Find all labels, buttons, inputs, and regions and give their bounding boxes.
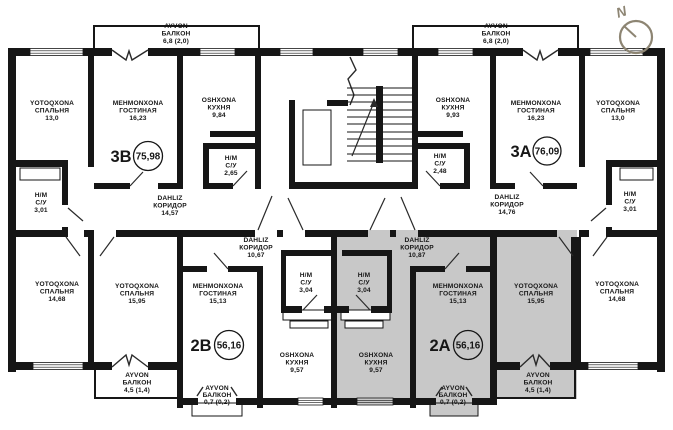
svg-text:H/M: H/M (225, 155, 238, 162)
room-label-2a-small-balcony: AYVONБАЛКОН0,7 (0,2) (439, 385, 468, 406)
svg-text:9,57: 9,57 (369, 367, 383, 374)
floor-plan-canvas: YOTOQXONAСПАЛЬНЯ13,0 MEHMONXONAГОСТИНАЯ1… (0, 0, 673, 430)
svg-text:КУХНЯ: КУХНЯ (286, 360, 309, 367)
svg-text:КОРИДОР: КОРИДОР (153, 203, 187, 210)
svg-text:СПАЛЬНЯ: СПАЛЬНЯ (600, 289, 634, 296)
floor-plan-page: YOTOQXONAСПАЛЬНЯ13,0 MEHMONXONAГОСТИНАЯ1… (0, 0, 673, 430)
svg-text:С/У: С/У (624, 199, 636, 206)
window (33, 363, 83, 370)
apartment-badge-2b[interactable]: 2B 56,16 (190, 331, 243, 360)
svg-text:9,84: 9,84 (212, 112, 226, 119)
svg-text:4,5 (1,4): 4,5 (1,4) (124, 387, 150, 394)
svg-text:DAHLIZ: DAHLIZ (243, 237, 268, 244)
room-label-bottom-right-bedroom: YOTOQXONAСПАЛЬНЯ14,68 (595, 281, 639, 303)
compass-north-label: N (614, 2, 629, 21)
svg-text:DAHLIZ: DAHLIZ (494, 194, 519, 201)
room-label-3b-living: MEHMONXONAГОСТИНАЯ16,23 (113, 100, 164, 122)
svg-text:СПАЛЬНЯ: СПАЛЬНЯ (120, 291, 154, 298)
svg-text:YOTOQXONA: YOTOQXONA (35, 281, 79, 288)
window (200, 49, 235, 56)
svg-text:14,57: 14,57 (161, 210, 178, 217)
svg-text:ГОСТИНАЯ: ГОСТИНАЯ (119, 108, 157, 115)
window (357, 398, 393, 405)
compass-needle (624, 26, 636, 37)
svg-text:OSHXONA: OSHXONA (202, 97, 236, 104)
svg-text:AYVON: AYVON (526, 372, 550, 379)
svg-text:AYVON: AYVON (484, 23, 508, 30)
window (30, 49, 83, 56)
shaft-2a-inner (345, 321, 383, 328)
room-label-2b-hall: DAHLIZКОРИДОР10,67 (239, 237, 273, 259)
svg-text:OSHXONA: OSHXONA (436, 97, 470, 104)
svg-text:15,95: 15,95 (128, 298, 145, 305)
svg-text:КОРИДОР: КОРИДОР (400, 245, 434, 252)
room-label-2a-balcony: AYVONБАЛКОН4,5 (1,4) (524, 372, 553, 394)
svg-text:YOTOQXONA: YOTOQXONA (595, 281, 639, 288)
svg-text:9,57: 9,57 (290, 367, 304, 374)
svg-text:10,67: 10,67 (247, 252, 264, 259)
svg-text:КУХНЯ: КУХНЯ (442, 105, 465, 112)
svg-text:СПАЛЬНЯ: СПАЛЬНЯ (519, 291, 553, 298)
staircase (347, 86, 412, 163)
balcony-door-2b (112, 355, 148, 367)
svg-text:DAHLIZ: DAHLIZ (157, 195, 182, 202)
svg-text:H/M: H/M (35, 192, 48, 199)
svg-text:2,65: 2,65 (224, 170, 238, 177)
svg-text:ГОСТИНАЯ: ГОСТИНАЯ (439, 291, 477, 298)
window (298, 398, 323, 405)
svg-text:15,13: 15,13 (449, 298, 466, 305)
small-balcony-door-2b (231, 387, 237, 396)
svg-text:КОРИДОР: КОРИДОР (239, 245, 273, 252)
apartment-area: 56,16 (456, 341, 481, 352)
svg-text:0,7 (0,2): 0,7 (0,2) (440, 399, 466, 406)
room-label-2b-wc: H/MС/У3,04 (299, 272, 313, 294)
svg-text:DAHLIZ: DAHLIZ (404, 237, 429, 244)
svg-text:AYVON: AYVON (205, 385, 229, 392)
room-label-3a-hall: DAHLIZКОРИДОР14,76 (490, 194, 524, 216)
room-label-2b-kitchen: OSHXONAКУХНЯ9,57 (280, 352, 314, 374)
entrance-door (348, 57, 356, 105)
svg-text:3,01: 3,01 (623, 206, 637, 213)
room-label-3b-bedroom: YOTOQXONAСПАЛЬНЯ13,0 (30, 100, 74, 122)
shaft-right-wc (620, 168, 653, 180)
svg-text:H/M: H/M (624, 191, 637, 198)
apartment-code: 3B (110, 148, 131, 166)
svg-text:БАЛКОН: БАЛКОН (162, 31, 191, 38)
svg-text:14,76: 14,76 (498, 209, 515, 216)
svg-text:MEHMONXONA: MEHMONXONA (193, 283, 244, 290)
svg-text:15,95: 15,95 (527, 298, 544, 305)
svg-text:БАЛКОН: БАЛКОН (439, 392, 468, 399)
svg-text:С/У: С/У (358, 280, 370, 287)
svg-text:6,8 (2,0): 6,8 (2,0) (483, 38, 509, 45)
svg-text:OSHXONA: OSHXONA (280, 352, 314, 359)
svg-text:3,04: 3,04 (299, 287, 313, 294)
room-label-2b-small-balcony: AYVONБАЛКОН0,7 (0,2) (203, 385, 232, 406)
svg-text:9,93: 9,93 (446, 112, 460, 119)
room-label-3b-wc: H/MС/У2,65 (224, 155, 238, 177)
svg-text:OSHXONA: OSHXONA (359, 352, 393, 359)
svg-text:БАЛКОН: БАЛКОН (482, 31, 511, 38)
window (438, 49, 473, 56)
room-label-3a-kitchen: OSHXONAКУХНЯ9,93 (436, 97, 470, 119)
svg-text:16,23: 16,23 (129, 115, 146, 122)
svg-text:13,0: 13,0 (45, 115, 59, 122)
svg-text:3,04: 3,04 (357, 287, 371, 294)
svg-text:С/У: С/У (225, 163, 237, 170)
svg-text:ГОСТИНАЯ: ГОСТИНАЯ (199, 291, 237, 298)
svg-text:СПАЛЬНЯ: СПАЛЬНЯ (601, 108, 635, 115)
svg-text:СПАЛЬНЯ: СПАЛЬНЯ (40, 289, 74, 296)
room-label-right-wc: H/MС/У3,01 (623, 191, 637, 213)
svg-text:2,48: 2,48 (433, 168, 447, 175)
svg-text:H/M: H/M (300, 272, 313, 279)
svg-text:0,7 (0,2): 0,7 (0,2) (204, 399, 230, 406)
room-label-2b-balcony: AYVONБАЛКОН4,5 (1,4) (123, 372, 152, 394)
stair-stringer (376, 86, 383, 163)
svg-text:БАЛКОН: БАЛКОН (123, 380, 152, 387)
room-label-3a-wc: H/MС/У2,48 (433, 153, 447, 175)
room-label-2b-living: MEHMONXONAГОСТИНАЯ15,13 (193, 283, 244, 305)
room-label-3a-bedroom: YOTOQXONAСПАЛЬНЯ13,0 (596, 100, 640, 122)
room-label-bottom-left-bedroom: YOTOQXONAСПАЛЬНЯ14,68 (35, 281, 79, 303)
apartment-area: 76,09 (535, 147, 560, 158)
shaft-left-wc (20, 168, 60, 180)
room-label-2b-bedroom: YOTOQXONAСПАЛЬНЯ15,95 (115, 283, 159, 305)
svg-text:КУХНЯ: КУХНЯ (208, 105, 231, 112)
balcony-door-3a (523, 50, 558, 60)
svg-text:MEHMONXONA: MEHMONXONA (113, 100, 164, 107)
window (588, 363, 638, 370)
svg-text:AYVON: AYVON (441, 385, 465, 392)
elevator-shaft (303, 110, 331, 165)
svg-text:AYVON: AYVON (125, 372, 149, 379)
svg-text:MEHMONXONA: MEHMONXONA (433, 283, 484, 290)
room-label-3b-kitchen: OSHXONAКУХНЯ9,84 (202, 97, 236, 119)
room-label-3a-living: MEHMONXONAГОСТИНАЯ16,23 (511, 100, 562, 122)
room-label-3b-balcony: AYVONБАЛКОН6,8 (2,0) (162, 23, 191, 45)
svg-text:14,68: 14,68 (608, 296, 625, 303)
apartment-code: 2A (429, 337, 450, 355)
room-label-left-wc: H/MС/У3,01 (34, 192, 48, 214)
svg-text:КУХНЯ: КУХНЯ (365, 360, 388, 367)
svg-text:4,5 (1,4): 4,5 (1,4) (525, 387, 551, 394)
apartment-area: 56,16 (217, 341, 242, 352)
svg-text:БАЛКОН: БАЛКОН (524, 380, 553, 387)
room-label-3a-balcony: AYVONБАЛКОН6,8 (2,0) (482, 23, 511, 45)
apartment-badge-3b[interactable]: 3B 75,98 (110, 142, 162, 171)
svg-text:С/У: С/У (35, 200, 47, 207)
window (363, 49, 398, 56)
svg-text:С/У: С/У (434, 161, 446, 168)
svg-text:YOTOQXONA: YOTOQXONA (514, 283, 558, 290)
svg-text:3,01: 3,01 (34, 207, 48, 214)
apartment-code: 3A (510, 143, 531, 161)
svg-text:YOTOQXONA: YOTOQXONA (30, 100, 74, 107)
compass: N (614, 2, 652, 53)
room-label-2a-wc: H/MС/У3,04 (357, 272, 371, 294)
svg-text:КОРИДОР: КОРИДОР (490, 202, 524, 209)
svg-text:YOTOQXONA: YOTOQXONA (115, 283, 159, 290)
room-label-3b-hall: DAHLIZКОРИДОР14,57 (153, 195, 187, 217)
svg-text:С/У: С/У (300, 280, 312, 287)
svg-text:AYVON: AYVON (164, 23, 188, 30)
svg-text:БАЛКОН: БАЛКОН (203, 392, 232, 399)
svg-text:13,0: 13,0 (611, 115, 625, 122)
svg-text:H/M: H/M (434, 153, 447, 160)
apartment-badge-3a[interactable]: 3A 76,09 (510, 137, 561, 165)
balcony-door-3b (112, 50, 148, 60)
svg-text:H/M: H/M (358, 272, 371, 279)
svg-text:14,68: 14,68 (48, 296, 65, 303)
svg-text:16,23: 16,23 (527, 115, 544, 122)
svg-text:СПАЛЬНЯ: СПАЛЬНЯ (35, 108, 69, 115)
svg-text:6,8 (2,0): 6,8 (2,0) (163, 38, 189, 45)
apartment-code: 2B (190, 337, 211, 355)
svg-text:15,13: 15,13 (209, 298, 226, 305)
svg-text:10,87: 10,87 (408, 252, 425, 259)
svg-text:ГОСТИНАЯ: ГОСТИНАЯ (517, 108, 555, 115)
apartment-area: 75,98 (136, 152, 161, 163)
window (280, 49, 313, 56)
svg-text:YOTOQXONA: YOTOQXONA (596, 100, 640, 107)
svg-text:MEHMONXONA: MEHMONXONA (511, 100, 562, 107)
shaft-2b-inner (290, 321, 328, 328)
